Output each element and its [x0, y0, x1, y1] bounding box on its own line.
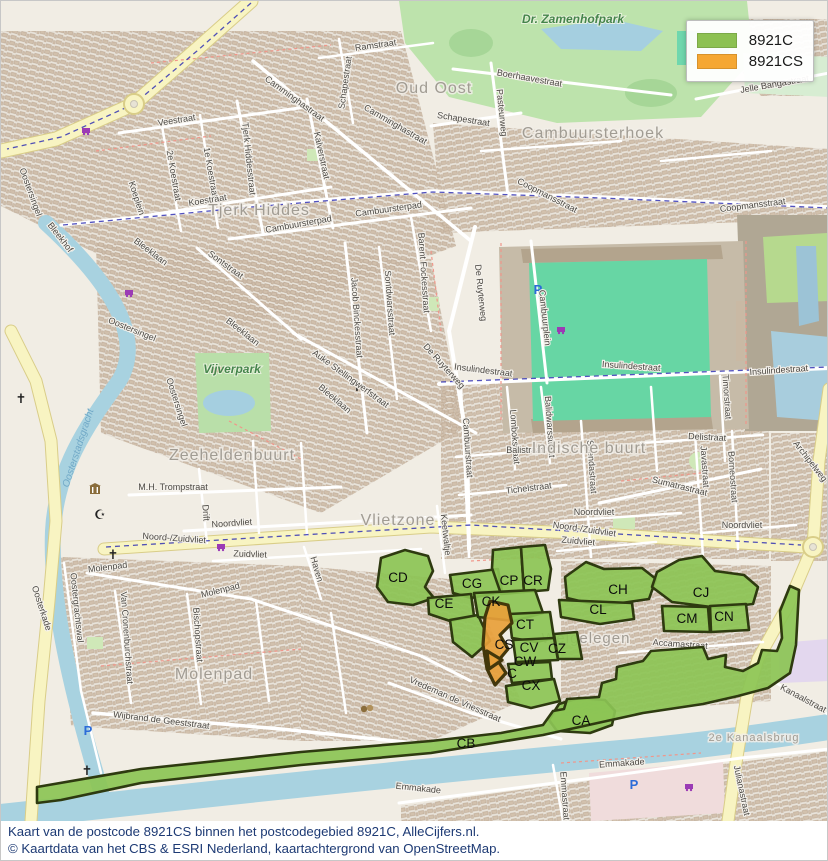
parking-icon: P: [630, 777, 639, 792]
caption: Kaart van de postcode 8921CS binnen het …: [1, 821, 827, 861]
legend-swatch-8921c: [697, 33, 737, 48]
region-label-CM: CM: [677, 611, 698, 626]
caption-line-2: © Kaartdata van het CBS & ESRI Nederland…: [8, 840, 827, 857]
region-label-CX: CX: [522, 678, 541, 693]
neighborhood-label: Molenpad: [175, 666, 253, 683]
region-label-CR: CR: [523, 573, 543, 588]
street-label: Noordvliet: [574, 507, 615, 517]
neighborhood-label: Zeeheldenbuurt: [169, 447, 295, 464]
region-label-CD: CD: [388, 570, 408, 585]
park-label: Dr. Zamenhofpark: [522, 12, 625, 26]
legend-label-8921cs: 8921CS: [749, 53, 803, 70]
street-label: Delistraat: [688, 431, 727, 443]
region-label-CE: CE: [435, 596, 454, 611]
neighborhood-label: Vlietzone: [361, 512, 436, 529]
region-label-CN: CN: [714, 609, 734, 624]
legend-row-8921cs: 8921CS: [697, 53, 803, 70]
church-icon: ✝: [82, 763, 93, 778]
region-label-CJ: CJ: [693, 585, 710, 600]
region-label-CZ: CZ: [548, 641, 566, 656]
map-svg: ✝✝✝✝☪PPP RamstraatSchapestraatCamminghas…: [1, 1, 828, 821]
mosque-icon: ☪: [94, 507, 106, 522]
neighborhood-label: Tjerk Hiddes: [208, 202, 310, 219]
street-label: M.H. Trompstraat: [138, 482, 208, 492]
region-label-CS: CS: [495, 637, 514, 652]
caption-line-1: Kaart van de postcode 8921CS binnen het …: [8, 823, 827, 840]
region-label-CT: CT: [516, 617, 534, 632]
region-label-C: C: [507, 666, 517, 681]
region-label-CW: CW: [514, 654, 537, 669]
region-label-CG: CG: [462, 576, 482, 591]
region-label-CA: CA: [572, 713, 591, 728]
street-label: Noordvliet: [722, 520, 763, 530]
parking-icon: P: [84, 723, 93, 738]
neighborhood-label: Cambuursterhoek: [522, 125, 664, 142]
street-label: Drift: [200, 504, 211, 522]
church-icon: ✝: [16, 391, 27, 406]
neighborhood-label: Indische buurt: [532, 440, 647, 457]
region-label-CV: CV: [520, 640, 539, 655]
region-label-CL: CL: [589, 602, 607, 617]
park-label: Vijverpark: [203, 362, 262, 376]
church-icon: ✝: [108, 547, 119, 562]
legend-swatch-8921cs: [697, 54, 737, 69]
screenshot-frame: ✝✝✝✝☪PPP RamstraatSchapestraatCamminghas…: [0, 0, 828, 861]
street-label: Zuidvliet: [233, 548, 267, 559]
region-label-CB: CB: [457, 736, 476, 751]
region-label-CP: CP: [500, 573, 519, 588]
legend-row-8921c: 8921C: [697, 32, 803, 49]
legend-label-8921c: 8921C: [749, 32, 793, 49]
map-canvas: ✝✝✝✝☪PPP RamstraatSchapestraatCamminghas…: [1, 1, 828, 821]
neighborhood-label: Oud Oost: [396, 80, 472, 97]
region-label-CH: CH: [608, 582, 628, 597]
neighborhood-label: 2e Kanaalsbrug: [708, 732, 799, 744]
legend-box: 8921C 8921CS: [686, 20, 814, 82]
region-label-CK: CK: [482, 594, 501, 609]
